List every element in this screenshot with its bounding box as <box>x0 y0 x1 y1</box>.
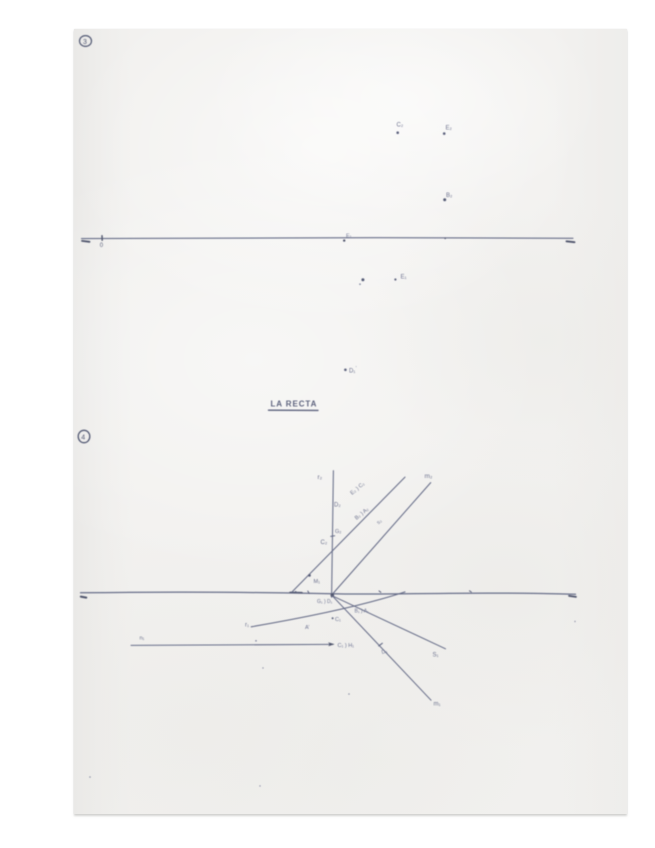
svg-text:G₁ ) D₁: G₁ ) D₁ <box>317 599 333 605</box>
svg-text:B₁ ) A₁: B₁ ) A₁ <box>355 609 370 615</box>
svg-text:C₁: C₁ <box>335 617 341 623</box>
svg-text:3: 3 <box>83 39 87 46</box>
svg-text:LA RECTA: LA RECTA <box>271 400 318 409</box>
svg-text:m₁: m₁ <box>434 702 441 708</box>
svg-text:E₁: E₁ <box>401 275 407 281</box>
svg-text:D₂: D₂ <box>334 503 341 509</box>
svg-text:C₂: C₂ <box>397 123 404 129</box>
svg-text:D₁: D₁ <box>349 369 355 375</box>
svg-text:E₂: E₂ <box>446 126 453 132</box>
svg-text:B₂: B₂ <box>446 193 453 199</box>
svg-text:C₁ ) H₁: C₁ ) H₁ <box>338 643 355 649</box>
svg-text:r₂: r₂ <box>318 474 323 481</box>
svg-text:E₁: E₁ <box>346 234 352 240</box>
svg-text:D₁: D₁ <box>381 649 388 656</box>
svg-text:r₁: r₁ <box>245 623 249 629</box>
svg-text:’: ’ <box>356 366 357 372</box>
svg-text:E₂ ) C₂: E₂ ) C₂ <box>349 481 366 496</box>
svg-text:4: 4 <box>81 435 85 442</box>
svg-text:n₁: n₁ <box>140 636 145 642</box>
svg-text:0: 0 <box>100 243 104 249</box>
svg-text:m₂: m₂ <box>425 473 433 480</box>
svg-text:A’: A’ <box>305 625 309 631</box>
svg-text:S₁: S₁ <box>433 653 439 659</box>
svg-text:B₂ ) A₂: B₂ ) A₂ <box>354 507 370 522</box>
svg-text:M₁: M₁ <box>314 579 321 585</box>
svg-text:G₂: G₂ <box>335 529 341 535</box>
svg-text:s₂: s₂ <box>376 518 384 526</box>
svg-text:C₂: C₂ <box>321 540 328 546</box>
